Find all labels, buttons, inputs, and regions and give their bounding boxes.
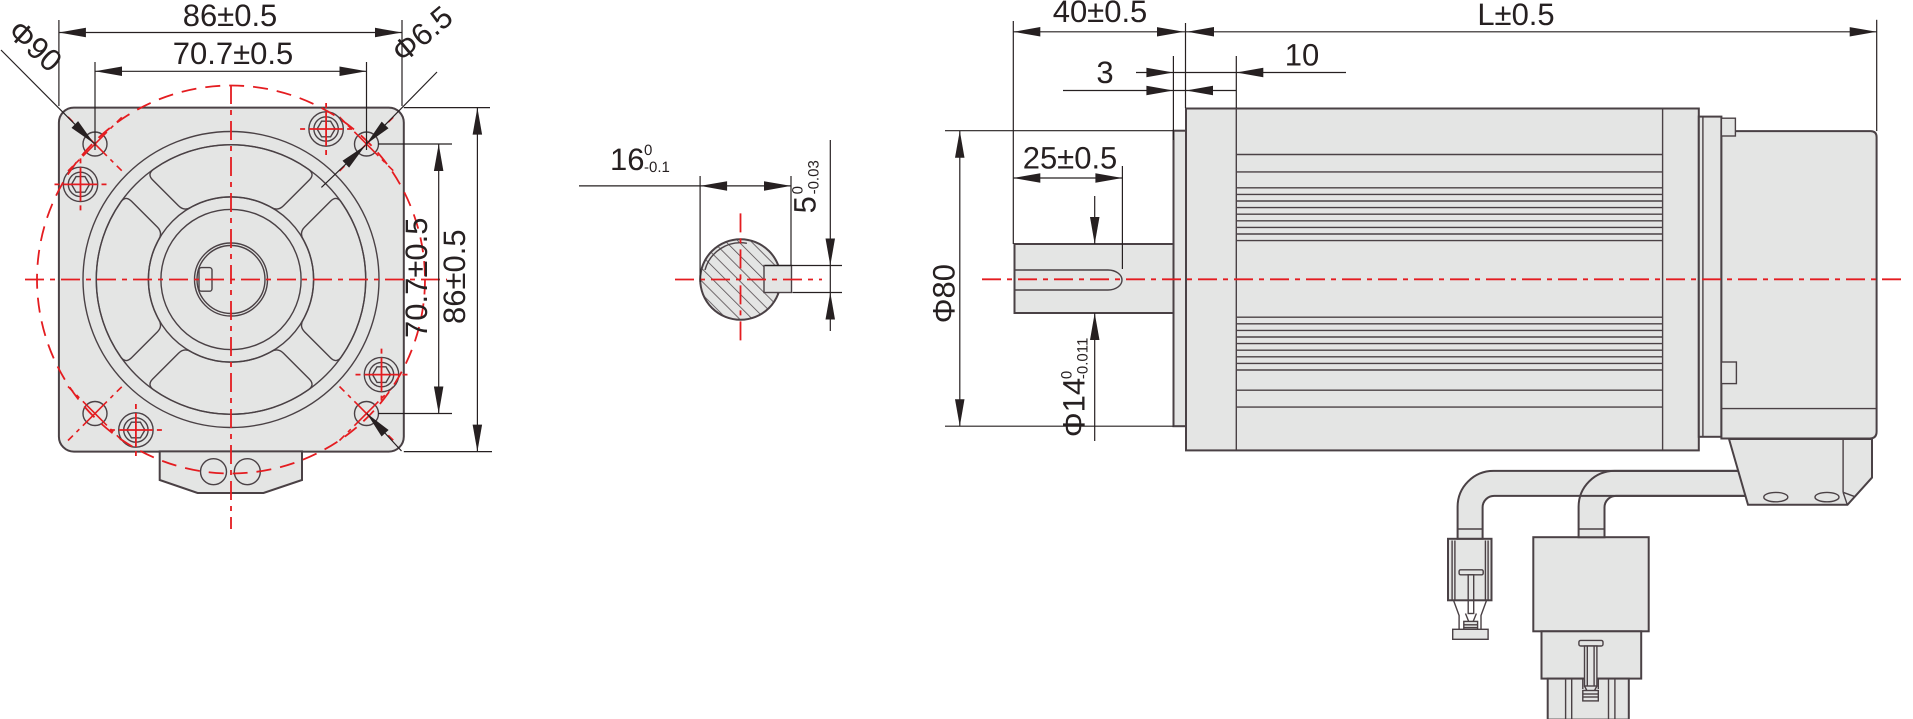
svg-text:Φ14: Φ14: [1057, 378, 1092, 437]
svg-text:0: 0: [789, 186, 806, 194]
svg-text:-0.03: -0.03: [805, 160, 822, 194]
svg-text:70.7±0.5: 70.7±0.5: [399, 218, 434, 338]
svg-text:-0.1: -0.1: [644, 159, 670, 176]
svg-text:L±0.5: L±0.5: [1477, 0, 1554, 32]
svg-text:70.7±0.5: 70.7±0.5: [173, 36, 293, 71]
svg-text:86±0.5: 86±0.5: [437, 229, 472, 324]
svg-text:16: 16: [610, 142, 644, 177]
svg-text:25±0.5: 25±0.5: [1023, 141, 1118, 176]
svg-text:40±0.5: 40±0.5: [1053, 0, 1148, 29]
svg-text:3: 3: [1096, 55, 1113, 90]
svg-text:0: 0: [644, 142, 652, 159]
svg-text:5: 5: [787, 196, 822, 213]
svg-text:Φ80: Φ80: [926, 264, 961, 323]
svg-text:-0.011: -0.011: [1075, 338, 1092, 379]
svg-text:86±0.5: 86±0.5: [183, 0, 278, 33]
svg-text:10: 10: [1285, 38, 1319, 73]
svg-text:0: 0: [1059, 371, 1076, 379]
